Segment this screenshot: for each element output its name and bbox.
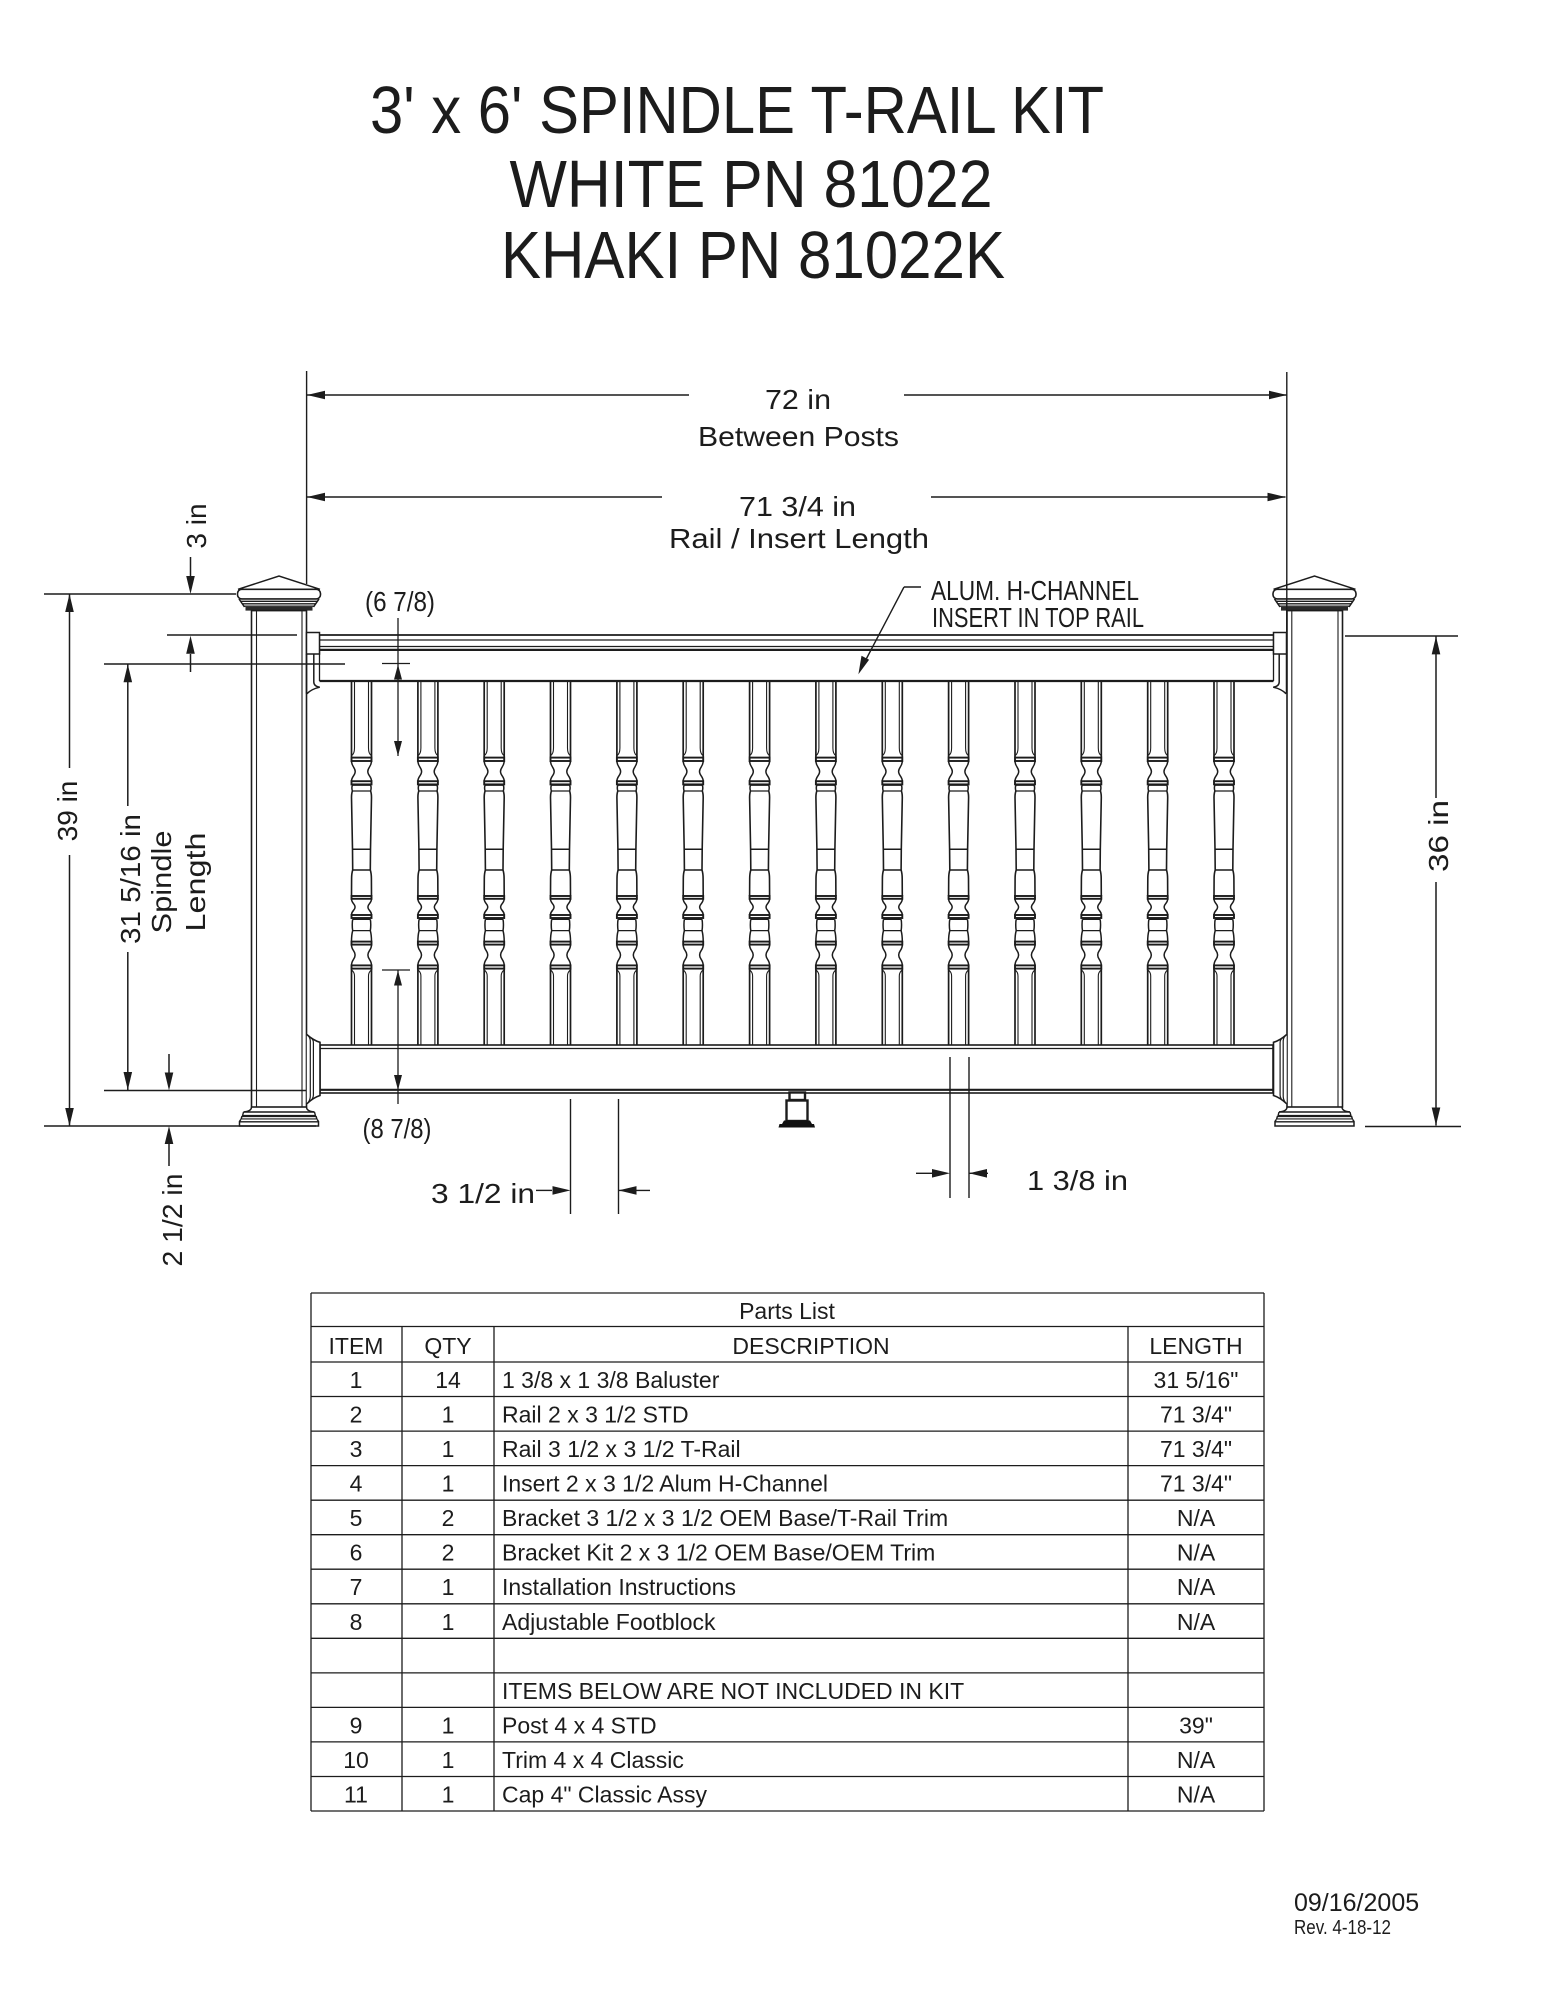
svg-text:ITEM: ITEM — [329, 1333, 384, 1359]
svg-text:Rail 2 x 3 1/2 STD: Rail 2 x 3 1/2 STD — [502, 1402, 689, 1428]
svg-text:Rev. 4-18-12: Rev. 4-18-12 — [1294, 1917, 1391, 1939]
svg-text:Cap 4" Classic Assy: Cap 4" Classic Assy — [502, 1782, 708, 1808]
svg-text:N/A: N/A — [1177, 1574, 1216, 1600]
svg-text:14: 14 — [435, 1367, 461, 1393]
svg-text:WHITE PN 81022: WHITE PN 81022 — [510, 147, 993, 222]
svg-text:3' x 6' SPINDLE T-RAIL KIT: 3' x 6' SPINDLE T-RAIL KIT — [370, 73, 1104, 148]
svg-text:Rail / Insert Length: Rail / Insert Length — [669, 523, 929, 554]
svg-text:KHAKI PN 81022K: KHAKI PN 81022K — [501, 218, 1005, 293]
svg-text:1 3/8 x 1 3/8 Baluster: 1 3/8 x 1 3/8 Baluster — [502, 1367, 720, 1393]
svg-text:1: 1 — [442, 1712, 455, 1738]
svg-text:1: 1 — [442, 1436, 455, 1462]
svg-text:N/A: N/A — [1177, 1505, 1216, 1531]
svg-text:N/A: N/A — [1177, 1782, 1216, 1808]
svg-text:(6 7/8): (6 7/8) — [365, 586, 435, 617]
svg-text:1: 1 — [442, 1574, 455, 1600]
svg-text:(8 7/8): (8 7/8) — [363, 1113, 432, 1144]
svg-text:Bracket 3 1/2 x 3 1/2 OEM Base: Bracket 3 1/2 x 3 1/2 OEM Base/T-Rail Tr… — [502, 1505, 948, 1531]
svg-text:71 3/4 in: 71 3/4 in — [739, 491, 856, 522]
svg-text:8: 8 — [350, 1609, 363, 1635]
svg-text:N/A: N/A — [1177, 1609, 1216, 1635]
svg-text:31 5/16 in: 31 5/16 in — [115, 814, 146, 944]
svg-text:2: 2 — [442, 1540, 455, 1566]
svg-text:Post 4 x 4 STD: Post 4 x 4 STD — [502, 1712, 657, 1738]
svg-text:INSERT IN TOP RAIL: INSERT IN TOP RAIL — [932, 602, 1144, 633]
svg-text:1: 1 — [350, 1367, 363, 1393]
svg-text:Length: Length — [180, 833, 211, 932]
svg-text:Insert 2 x 3 1/2 Alum H-Channe: Insert 2 x 3 1/2 Alum H-Channel — [502, 1471, 828, 1497]
svg-text:1 3/8 in: 1 3/8 in — [1027, 1165, 1128, 1196]
svg-text:3 in: 3 in — [181, 503, 212, 548]
svg-text:3: 3 — [350, 1436, 363, 1462]
svg-text:71 3/4": 71 3/4" — [1160, 1402, 1232, 1428]
svg-text:Spindle: Spindle — [146, 831, 177, 934]
svg-text:N/A: N/A — [1177, 1747, 1216, 1773]
svg-text:71 3/4": 71 3/4" — [1160, 1471, 1232, 1497]
svg-text:6: 6 — [350, 1540, 363, 1566]
svg-text:2: 2 — [442, 1505, 455, 1531]
svg-text:2 1/2 in: 2 1/2 in — [157, 1174, 188, 1267]
svg-text:3 1/2 in: 3 1/2 in — [431, 1178, 535, 1209]
svg-text:N/A: N/A — [1177, 1540, 1216, 1566]
svg-text:Bracket Kit 2 x 3 1/2 OEM Base: Bracket Kit 2 x 3 1/2 OEM Base/OEM Trim — [502, 1540, 935, 1566]
svg-text:Trim 4 x 4 Classic: Trim 4 x 4 Classic — [502, 1747, 684, 1773]
svg-text:1: 1 — [442, 1782, 455, 1808]
svg-text:Parts List: Parts List — [739, 1298, 835, 1324]
svg-text:10: 10 — [343, 1747, 369, 1773]
svg-text:9: 9 — [350, 1712, 363, 1738]
svg-text:39 in: 39 in — [52, 781, 83, 842]
svg-text:Installation Instructions: Installation Instructions — [502, 1574, 736, 1600]
svg-text:1: 1 — [442, 1609, 455, 1635]
svg-text:ITEMS BELOW ARE NOT INCLUDED I: ITEMS BELOW ARE NOT INCLUDED IN KIT — [502, 1678, 964, 1704]
svg-text:1: 1 — [442, 1471, 455, 1497]
svg-text:36 in: 36 in — [1423, 800, 1454, 872]
svg-text:DESCRIPTION: DESCRIPTION — [732, 1333, 889, 1359]
svg-text:72 in: 72 in — [765, 384, 831, 415]
svg-text:1: 1 — [442, 1747, 455, 1773]
svg-text:39": 39" — [1179, 1712, 1213, 1738]
svg-text:5: 5 — [350, 1505, 363, 1531]
svg-text:2: 2 — [350, 1402, 363, 1428]
svg-text:LENGTH: LENGTH — [1149, 1333, 1242, 1359]
svg-text:4: 4 — [350, 1471, 363, 1497]
svg-text:11: 11 — [344, 1782, 368, 1808]
svg-text:Adjustable Footblock: Adjustable Footblock — [502, 1609, 716, 1635]
svg-text:31 5/16": 31 5/16" — [1154, 1367, 1239, 1393]
svg-text:7: 7 — [350, 1574, 363, 1600]
svg-text:1: 1 — [442, 1402, 455, 1428]
svg-text:09/16/2005: 09/16/2005 — [1294, 1889, 1419, 1917]
svg-text:71 3/4": 71 3/4" — [1160, 1436, 1232, 1462]
svg-text:QTY: QTY — [424, 1333, 471, 1359]
svg-text:Rail 3 1/2 x 3 1/2 T-Rail: Rail 3 1/2 x 3 1/2 T-Rail — [502, 1436, 741, 1462]
svg-text:Between Posts: Between Posts — [698, 421, 899, 452]
